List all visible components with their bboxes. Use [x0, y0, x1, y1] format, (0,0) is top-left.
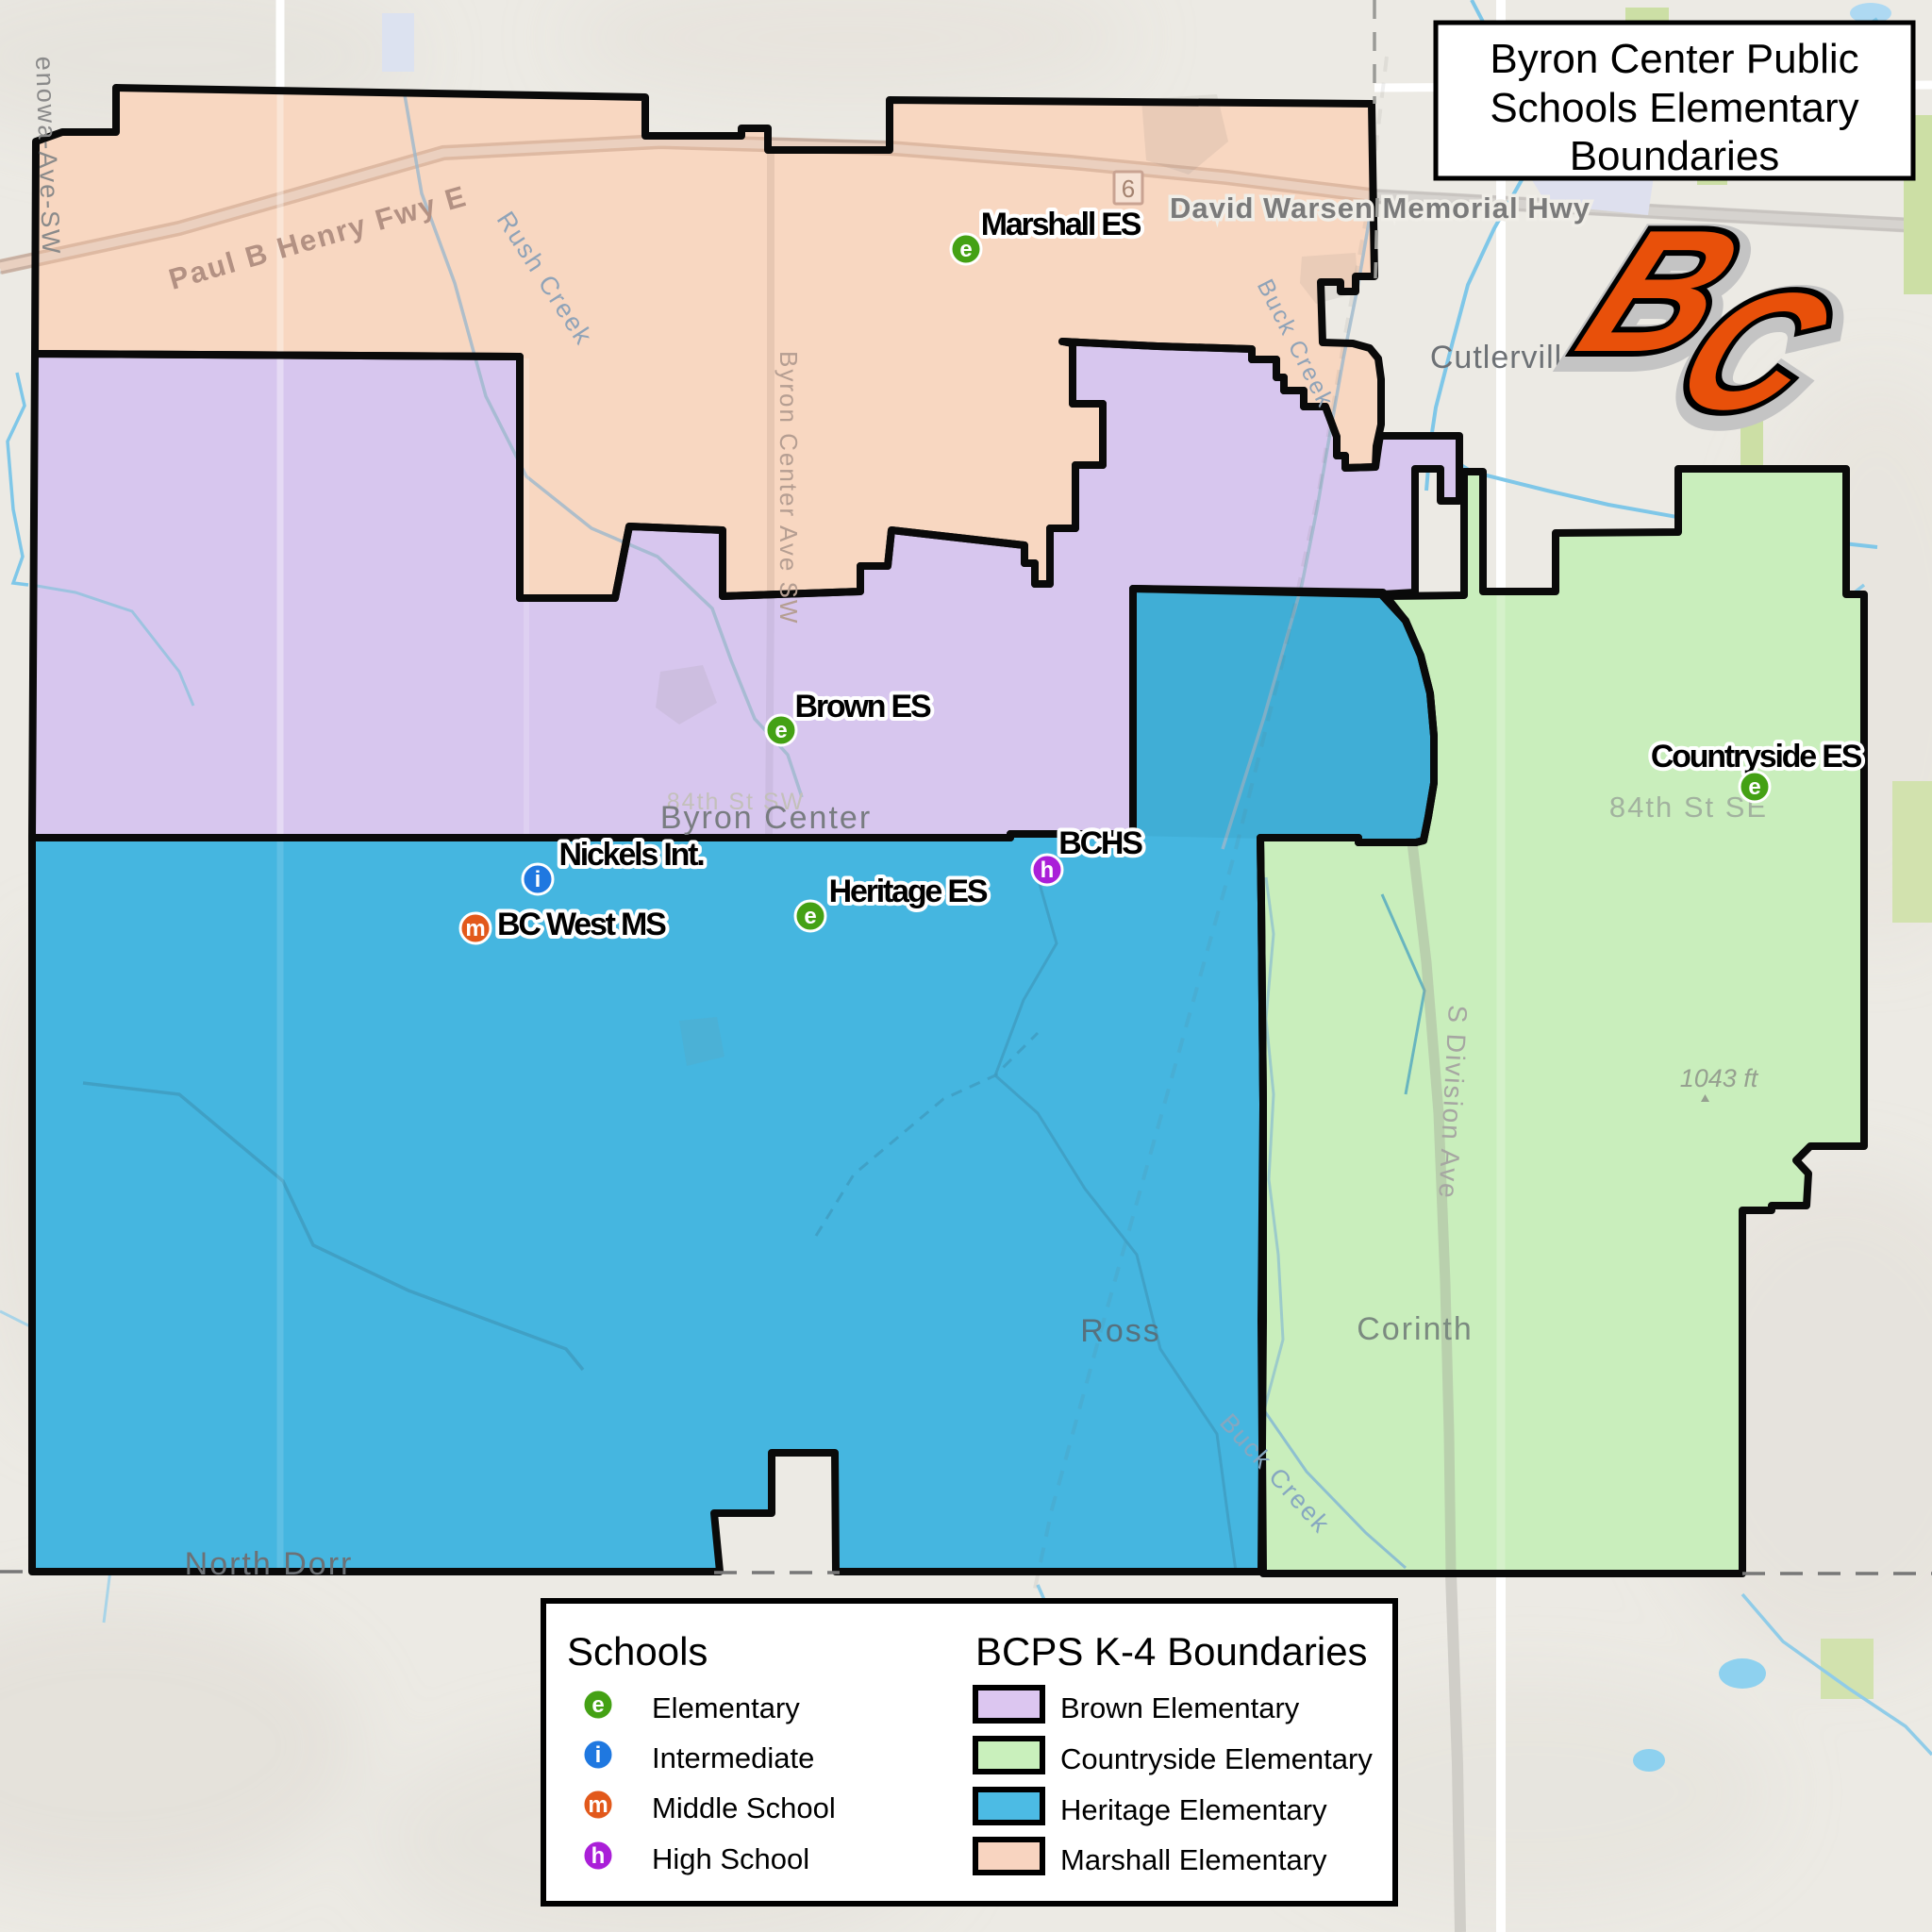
svg-text:Cutlerville: Cutlerville	[1430, 340, 1581, 375]
svg-text:BC West MS: BC West MS	[497, 907, 666, 942]
svg-text:1043 ft: 1043 ft	[1680, 1064, 1759, 1092]
svg-text:Brown Elementary: Brown Elementary	[1060, 1691, 1300, 1724]
svg-text:Middle School: Middle School	[652, 1791, 836, 1824]
svg-text:m: m	[588, 1792, 608, 1818]
svg-text:BCPS K-4 Boundaries: BCPS K-4 Boundaries	[975, 1629, 1368, 1674]
svg-text:Byron Center Ave SW: Byron Center Ave SW	[774, 351, 803, 625]
svg-text:North Dorr: North Dorr	[185, 1546, 354, 1582]
svg-text:m: m	[465, 916, 485, 941]
svg-text:e: e	[804, 904, 816, 929]
svg-text:Intermediate: Intermediate	[652, 1741, 814, 1774]
svg-text:Byron Center: Byron Center	[660, 800, 872, 836]
svg-text:Marshall ES: Marshall ES	[981, 207, 1141, 242]
svg-text:e: e	[591, 1692, 604, 1718]
svg-text:h: h	[1041, 858, 1055, 883]
svg-text:David Warsen Memorial Hwy: David Warsen Memorial Hwy	[1170, 192, 1591, 225]
svg-text:Ross: Ross	[1080, 1313, 1160, 1349]
svg-text:e: e	[1748, 774, 1760, 800]
svg-text:Heritage ES: Heritage ES	[829, 874, 988, 909]
svg-text:h: h	[591, 1843, 606, 1869]
svg-text:Corinth: Corinth	[1357, 1311, 1474, 1347]
svg-text:e: e	[959, 237, 972, 262]
svg-text:Schools Elementary: Schools Elementary	[1490, 85, 1858, 131]
svg-text:Elementary: Elementary	[652, 1691, 800, 1724]
svg-text:Nickels Int.: Nickels Int.	[558, 837, 704, 873]
svg-text:High School: High School	[652, 1842, 809, 1875]
svg-text:Schools: Schools	[567, 1629, 708, 1674]
svg-text:Brown ES: Brown ES	[795, 689, 931, 724]
svg-text:i: i	[595, 1742, 602, 1768]
svg-text:Countryside ES: Countryside ES	[1651, 739, 1862, 774]
svg-text:6: 6	[1122, 175, 1135, 203]
svg-text:Boundaries: Boundaries	[1570, 133, 1780, 179]
svg-text:Byron Center Public: Byron Center Public	[1490, 36, 1858, 82]
svg-text:Heritage Elementary: Heritage Elementary	[1060, 1793, 1327, 1826]
svg-text:BCHS: BCHS	[1058, 825, 1142, 861]
svg-text:Marshall Elementary: Marshall Elementary	[1060, 1843, 1327, 1876]
svg-text:e: e	[774, 718, 787, 743]
svg-text:i: i	[535, 867, 541, 892]
svg-text:Countryside Elementary: Countryside Elementary	[1060, 1742, 1373, 1775]
